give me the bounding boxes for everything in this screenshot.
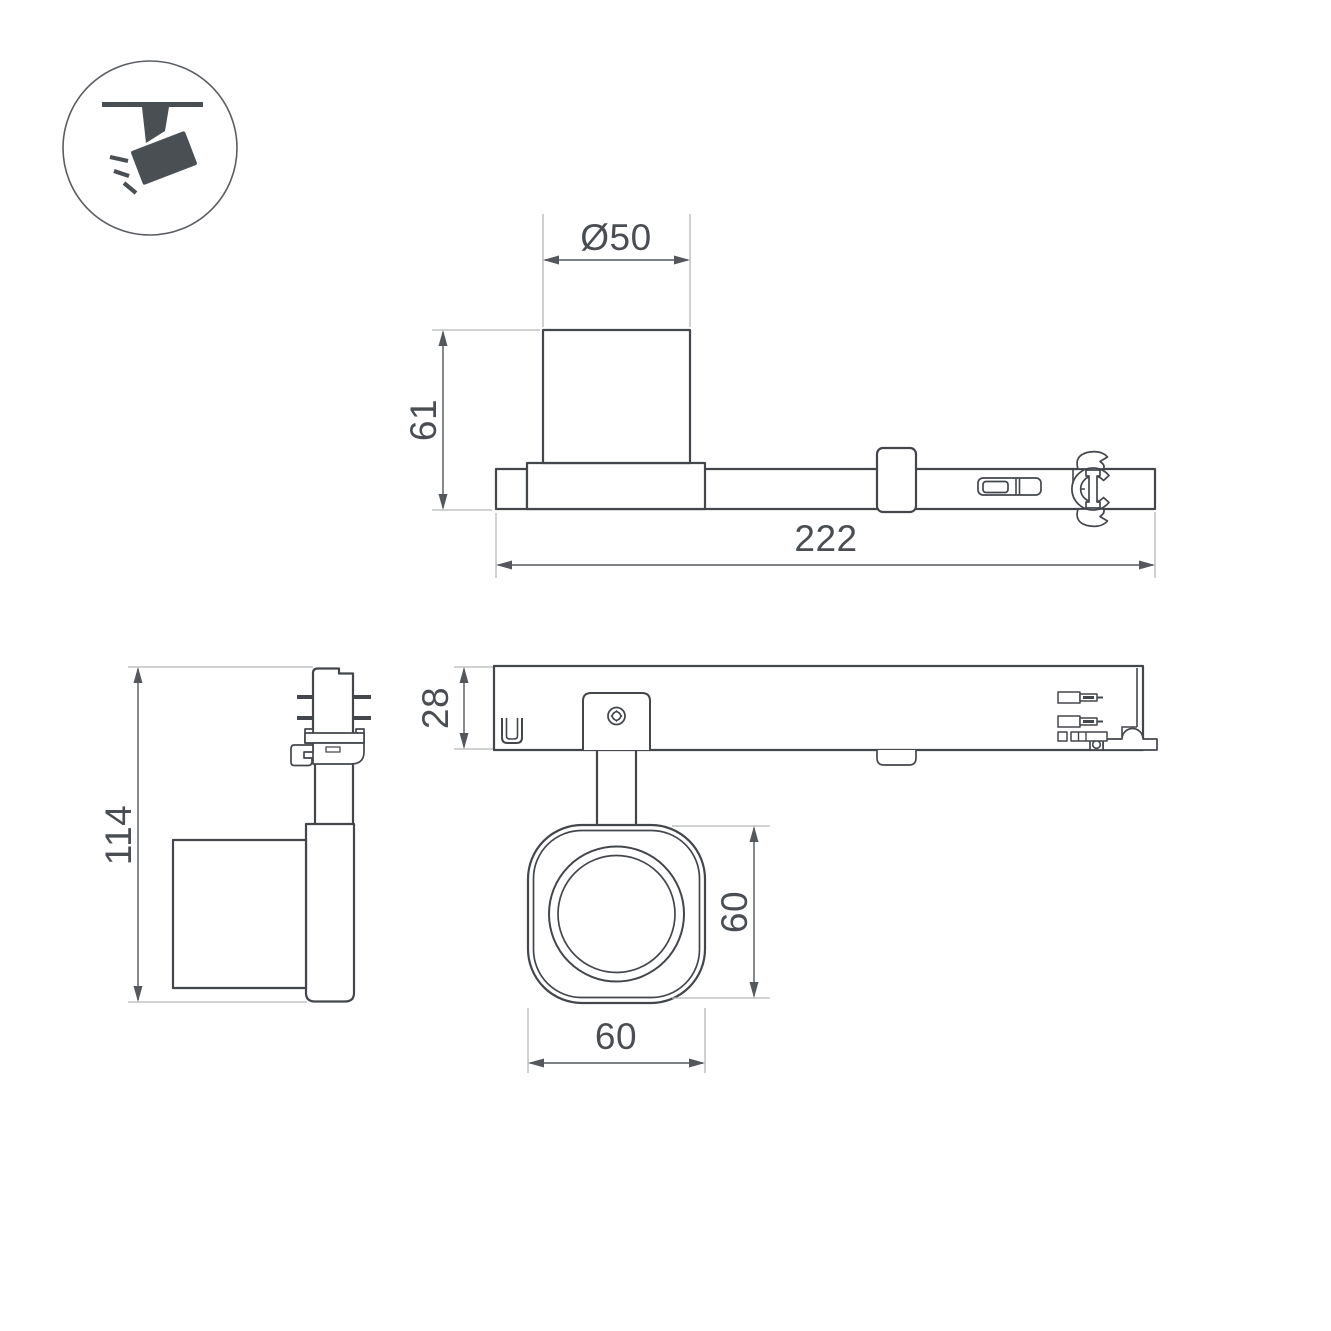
- dim-track-height: 28: [415, 667, 493, 749]
- track-light-icon: [63, 61, 237, 235]
- adapter-slot: [326, 747, 340, 752]
- dim-label-head-width: 60: [595, 1016, 637, 1057]
- front-view: Ø50 61 222: [403, 214, 1155, 578]
- adapter-flange: [305, 733, 364, 743]
- lock-lower-wing: [1077, 509, 1107, 526]
- dim-label-track-height: 28: [415, 687, 456, 729]
- dim-label-head-height: 60: [714, 891, 755, 933]
- lamp-barrel: [173, 840, 306, 988]
- lamp-rear-housing: [306, 824, 354, 1002]
- dim-label-total-height: 114: [98, 805, 139, 866]
- bottom-view: 28 60 60: [415, 666, 1157, 1073]
- dim-head-width: 60: [528, 1008, 705, 1073]
- adapter-under-block: [313, 743, 364, 764]
- dimension-drawing-page: Ø50 61 222: [0, 0, 1331, 1331]
- connector-pin: [1058, 692, 1103, 703]
- dim-label-body-height: 61: [403, 399, 444, 441]
- lock-upper-wing: [1077, 452, 1107, 469]
- dim-label-diameter: Ø50: [580, 217, 651, 258]
- switch-knob: [983, 482, 1008, 493]
- rail-clamp-block: [877, 448, 916, 512]
- side-view: 114: [98, 667, 371, 1002]
- dim-diameter: Ø50: [543, 214, 690, 327]
- connector-pin: [1058, 716, 1103, 727]
- icon-ceiling-bar: [102, 102, 203, 107]
- clamp-tab: [877, 750, 916, 765]
- connector-terminal-row: [1058, 732, 1107, 741]
- dim-label-track-length: 222: [794, 518, 857, 559]
- dimension-drawing: Ø50 61 222: [0, 0, 1331, 1331]
- lamp-cylinder: [543, 330, 690, 463]
- adapter-hook: [291, 745, 313, 766]
- lamp-head-outline: [528, 825, 705, 1003]
- dim-track-length: 222: [496, 512, 1155, 578]
- lamp-base-plate: [527, 463, 705, 509]
